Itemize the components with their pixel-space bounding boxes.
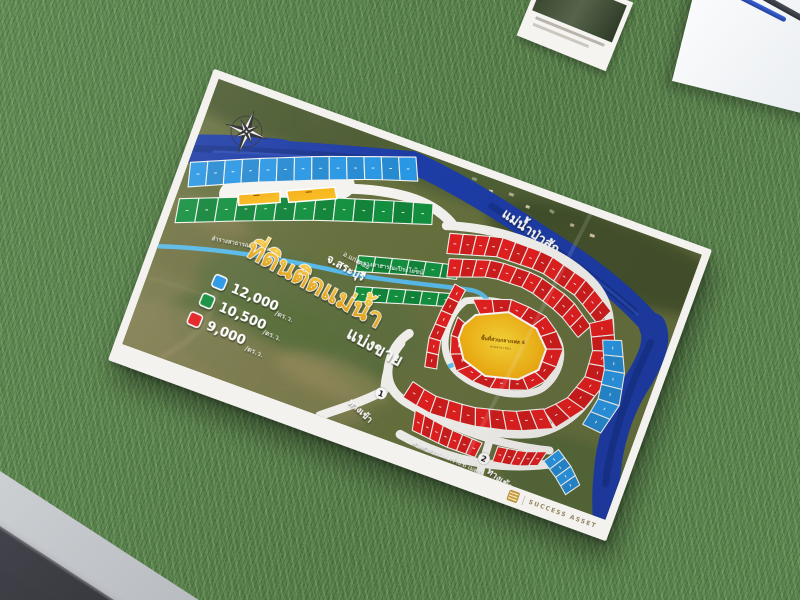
plot-number-text: [197, 174, 200, 175]
plot-number-text: [323, 209, 326, 210]
plot-number-text: [225, 209, 228, 210]
plot-number-text: [407, 168, 410, 169]
map-area: แม่น้ำป่าสัก: [122, 79, 701, 520]
plot-number-text: [205, 209, 208, 210]
plot-number-text: [232, 171, 235, 172]
plot-number-text: [362, 210, 365, 211]
plot-number-text: [389, 168, 392, 169]
plot-number-text: [249, 170, 252, 171]
plot-number-text: [354, 168, 357, 169]
plot-number-text: [372, 168, 375, 169]
plot-number-text: [343, 209, 346, 210]
plot-number-text: [516, 383, 519, 384]
plot-number-text: [267, 169, 270, 170]
map-graphic: แม่น้ำป่าสัก: [122, 79, 701, 520]
plot-number-text: [337, 168, 340, 169]
photo-scene: แม่น้ำป่าสัก: [0, 0, 800, 600]
plot-number-text: [264, 208, 267, 209]
plot-number-text: [378, 295, 381, 296]
plot-number-text: [214, 172, 217, 173]
plot-number-text: [284, 169, 287, 170]
plot-number-text: [510, 420, 513, 421]
plot-number-text: [186, 210, 189, 211]
plot-number-text: [245, 209, 248, 210]
plot-number-text: [395, 296, 398, 297]
plot-number-text: [467, 268, 470, 269]
logo-divider: [521, 495, 525, 505]
plot-number-text: [527, 458, 530, 459]
plot-number-text: [453, 267, 456, 268]
plot-number-text: [284, 208, 287, 209]
background-paper: [672, 0, 800, 141]
plot-number-text: [303, 208, 306, 209]
brand-logo-icon: [506, 489, 520, 503]
plot-number-text: [480, 268, 483, 269]
plot-number-text: [302, 168, 305, 169]
plot-number-text: [484, 308, 487, 309]
land-plot-map-card: แม่น้ำป่าสัก: [108, 69, 712, 542]
plot-number-text: [500, 307, 503, 308]
plot-number-text: [536, 458, 539, 459]
plot-number-text: [382, 211, 385, 212]
background-brochure-card: [517, 0, 634, 71]
plot-number-text: [319, 168, 322, 169]
